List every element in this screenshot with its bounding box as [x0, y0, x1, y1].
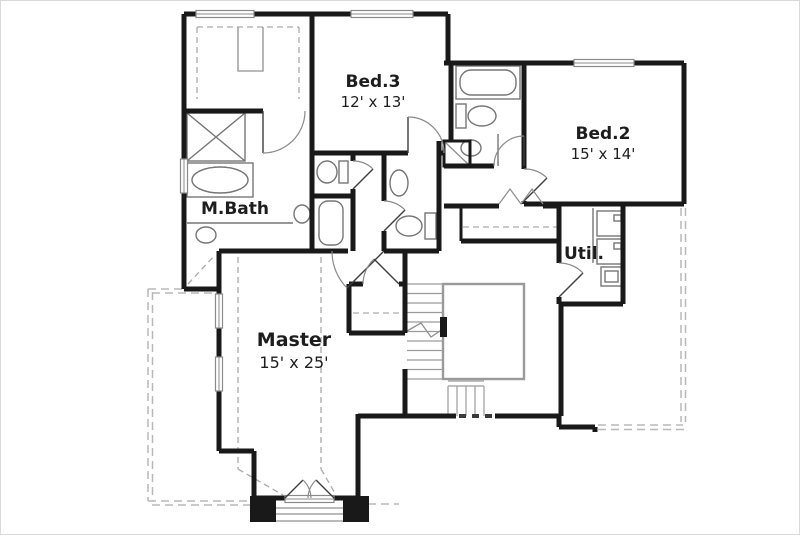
toilet-icon: [456, 104, 496, 128]
door-arc: [263, 111, 305, 153]
window-icon: [574, 60, 634, 67]
door-arc: [353, 161, 373, 189]
sink-icon: [196, 227, 216, 243]
door-arc: [384, 201, 405, 231]
window-icon: [351, 11, 413, 18]
door-arc: [363, 259, 399, 284]
stair-break-line: [407, 323, 443, 337]
window-icon: [285, 496, 334, 503]
door-arc: [559, 263, 583, 297]
bay-post: [343, 496, 369, 522]
bay-post: [250, 496, 276, 522]
toilet-icon: [317, 161, 348, 183]
room-dims-bed2: 15' x 14': [571, 145, 636, 163]
stair-newel-post: [440, 317, 447, 337]
floor-plan-svg: Bed.3 12' x 13' Bed.2 15' x 14' M.Bath U…: [1, 1, 799, 534]
room-label-mbath: M.Bath: [201, 199, 269, 219]
room-label-bed3: Bed.3: [346, 72, 401, 92]
floor-plan-page: Bed.3 12' x 13' Bed.2 15' x 14' M.Bath U…: [0, 0, 800, 535]
bathtub-icon: [456, 66, 520, 99]
sink-icon: [294, 205, 310, 223]
room-label-bed2: Bed.2: [576, 124, 631, 144]
room-labels: Bed.3 12' x 13' Bed.2 15' x 14' M.Bath U…: [201, 72, 635, 372]
room-dims-bed3: 12' x 13': [341, 93, 406, 111]
bathtub-icon: [187, 163, 253, 197]
bay-porch-lines: [269, 508, 352, 521]
room-dims-master: 15' x 25': [259, 353, 328, 372]
room-label-master: Master: [257, 329, 332, 351]
walls: [184, 14, 684, 522]
toilet-icon: [396, 213, 436, 239]
sink-icon: [390, 170, 408, 196]
stairs: [407, 284, 524, 416]
window-icon: [216, 294, 223, 328]
shower-icon: [187, 113, 245, 161]
stairwell-opening: [443, 284, 524, 379]
window-icon: [181, 159, 188, 193]
linen-cabinet: [319, 201, 343, 245]
window-icon: [216, 357, 223, 391]
room-label-util: Util.: [564, 244, 604, 264]
window-icon: [196, 11, 254, 18]
